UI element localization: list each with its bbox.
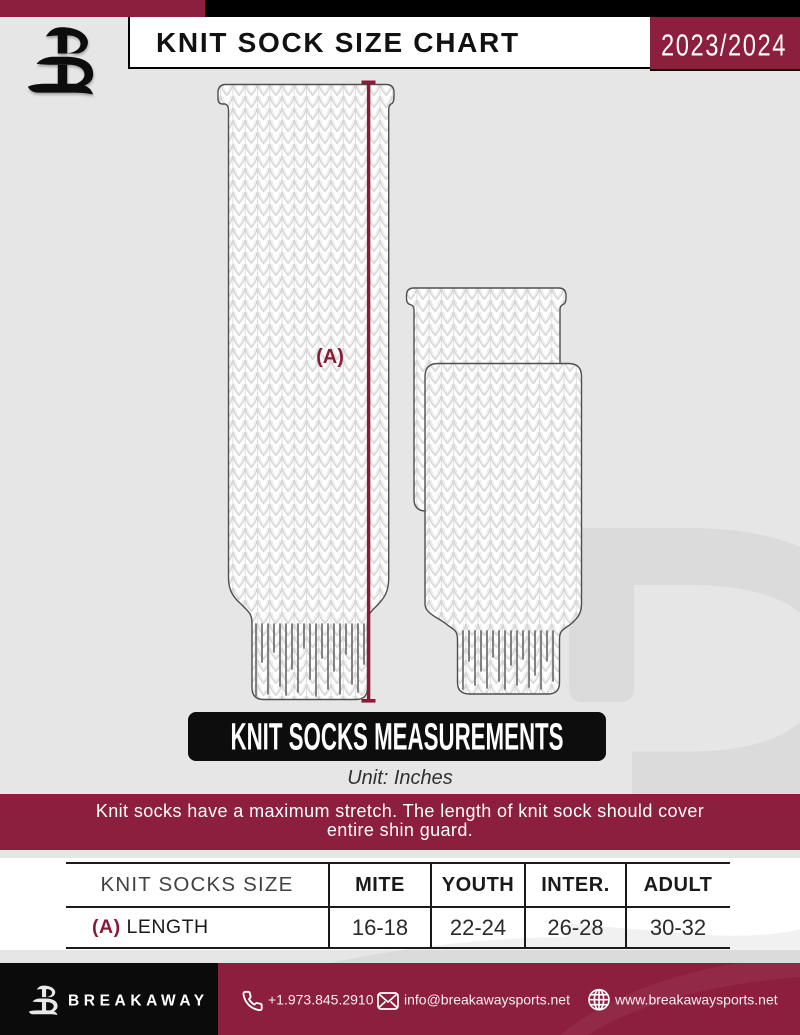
svg-text:info@breakawaysports.net: info@breakawaysports.net [404, 992, 570, 1008]
svg-text:www.breakawaysports.net: www.breakawaysports.net [614, 992, 778, 1008]
svg-text:2023/2024: 2023/2024 [661, 28, 787, 63]
svg-text:BREAKAWAY: BREAKAWAY [68, 993, 209, 1010]
svg-text:(A): (A) [316, 346, 344, 368]
svg-text:KNIT SOCKS MEASUREMENTS: KNIT SOCKS MEASUREMENTS [231, 717, 564, 759]
svg-text:+1.973.845.2910: +1.973.845.2910 [268, 992, 374, 1008]
